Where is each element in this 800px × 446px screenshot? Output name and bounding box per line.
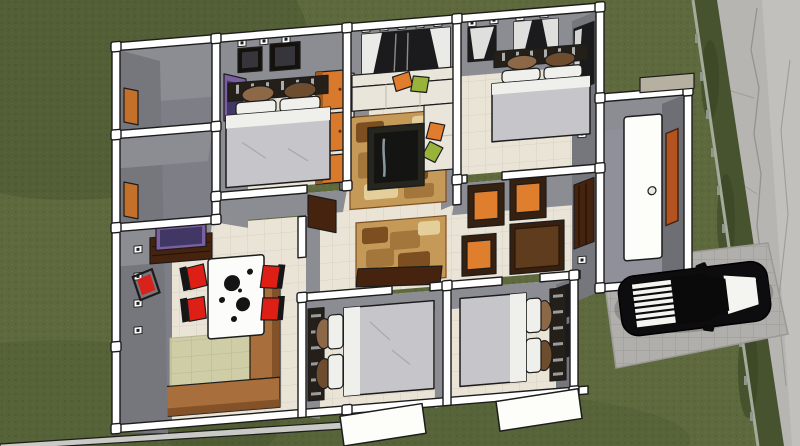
bed-2	[492, 44, 590, 142]
bed-1	[226, 75, 330, 188]
wing-orange-window	[666, 129, 678, 226]
lounge-chair	[468, 183, 504, 228]
render-viewport	[0, 0, 800, 446]
floor-plan-render	[0, 0, 800, 446]
dining-table	[208, 255, 264, 340]
hallway-floor	[298, 257, 306, 294]
store-room-a-door	[124, 87, 138, 126]
store-room-b-door	[124, 181, 138, 220]
bed-4	[460, 288, 566, 389]
wing-door-knob	[648, 186, 656, 195]
lounge-chair	[510, 175, 546, 220]
dining-tv-inner	[160, 227, 202, 247]
coffee-table	[368, 123, 424, 190]
wall-picture-inner	[275, 46, 295, 67]
throw-pillow-green	[411, 76, 429, 92]
wall-picture-inner	[242, 51, 258, 68]
kitchen-mat	[170, 332, 250, 387]
dining-chair	[180, 294, 206, 322]
dining-chair	[261, 296, 285, 320]
wing-door-panel	[624, 114, 662, 261]
wall-face	[435, 290, 443, 409]
lounge-chair	[462, 233, 496, 276]
hallway-floor	[453, 204, 461, 281]
car-roof	[671, 273, 711, 325]
kitchen-counter-edge	[272, 279, 280, 378]
lounge-east-door	[574, 177, 594, 249]
dining-chair	[260, 263, 285, 288]
side-table	[510, 220, 564, 274]
